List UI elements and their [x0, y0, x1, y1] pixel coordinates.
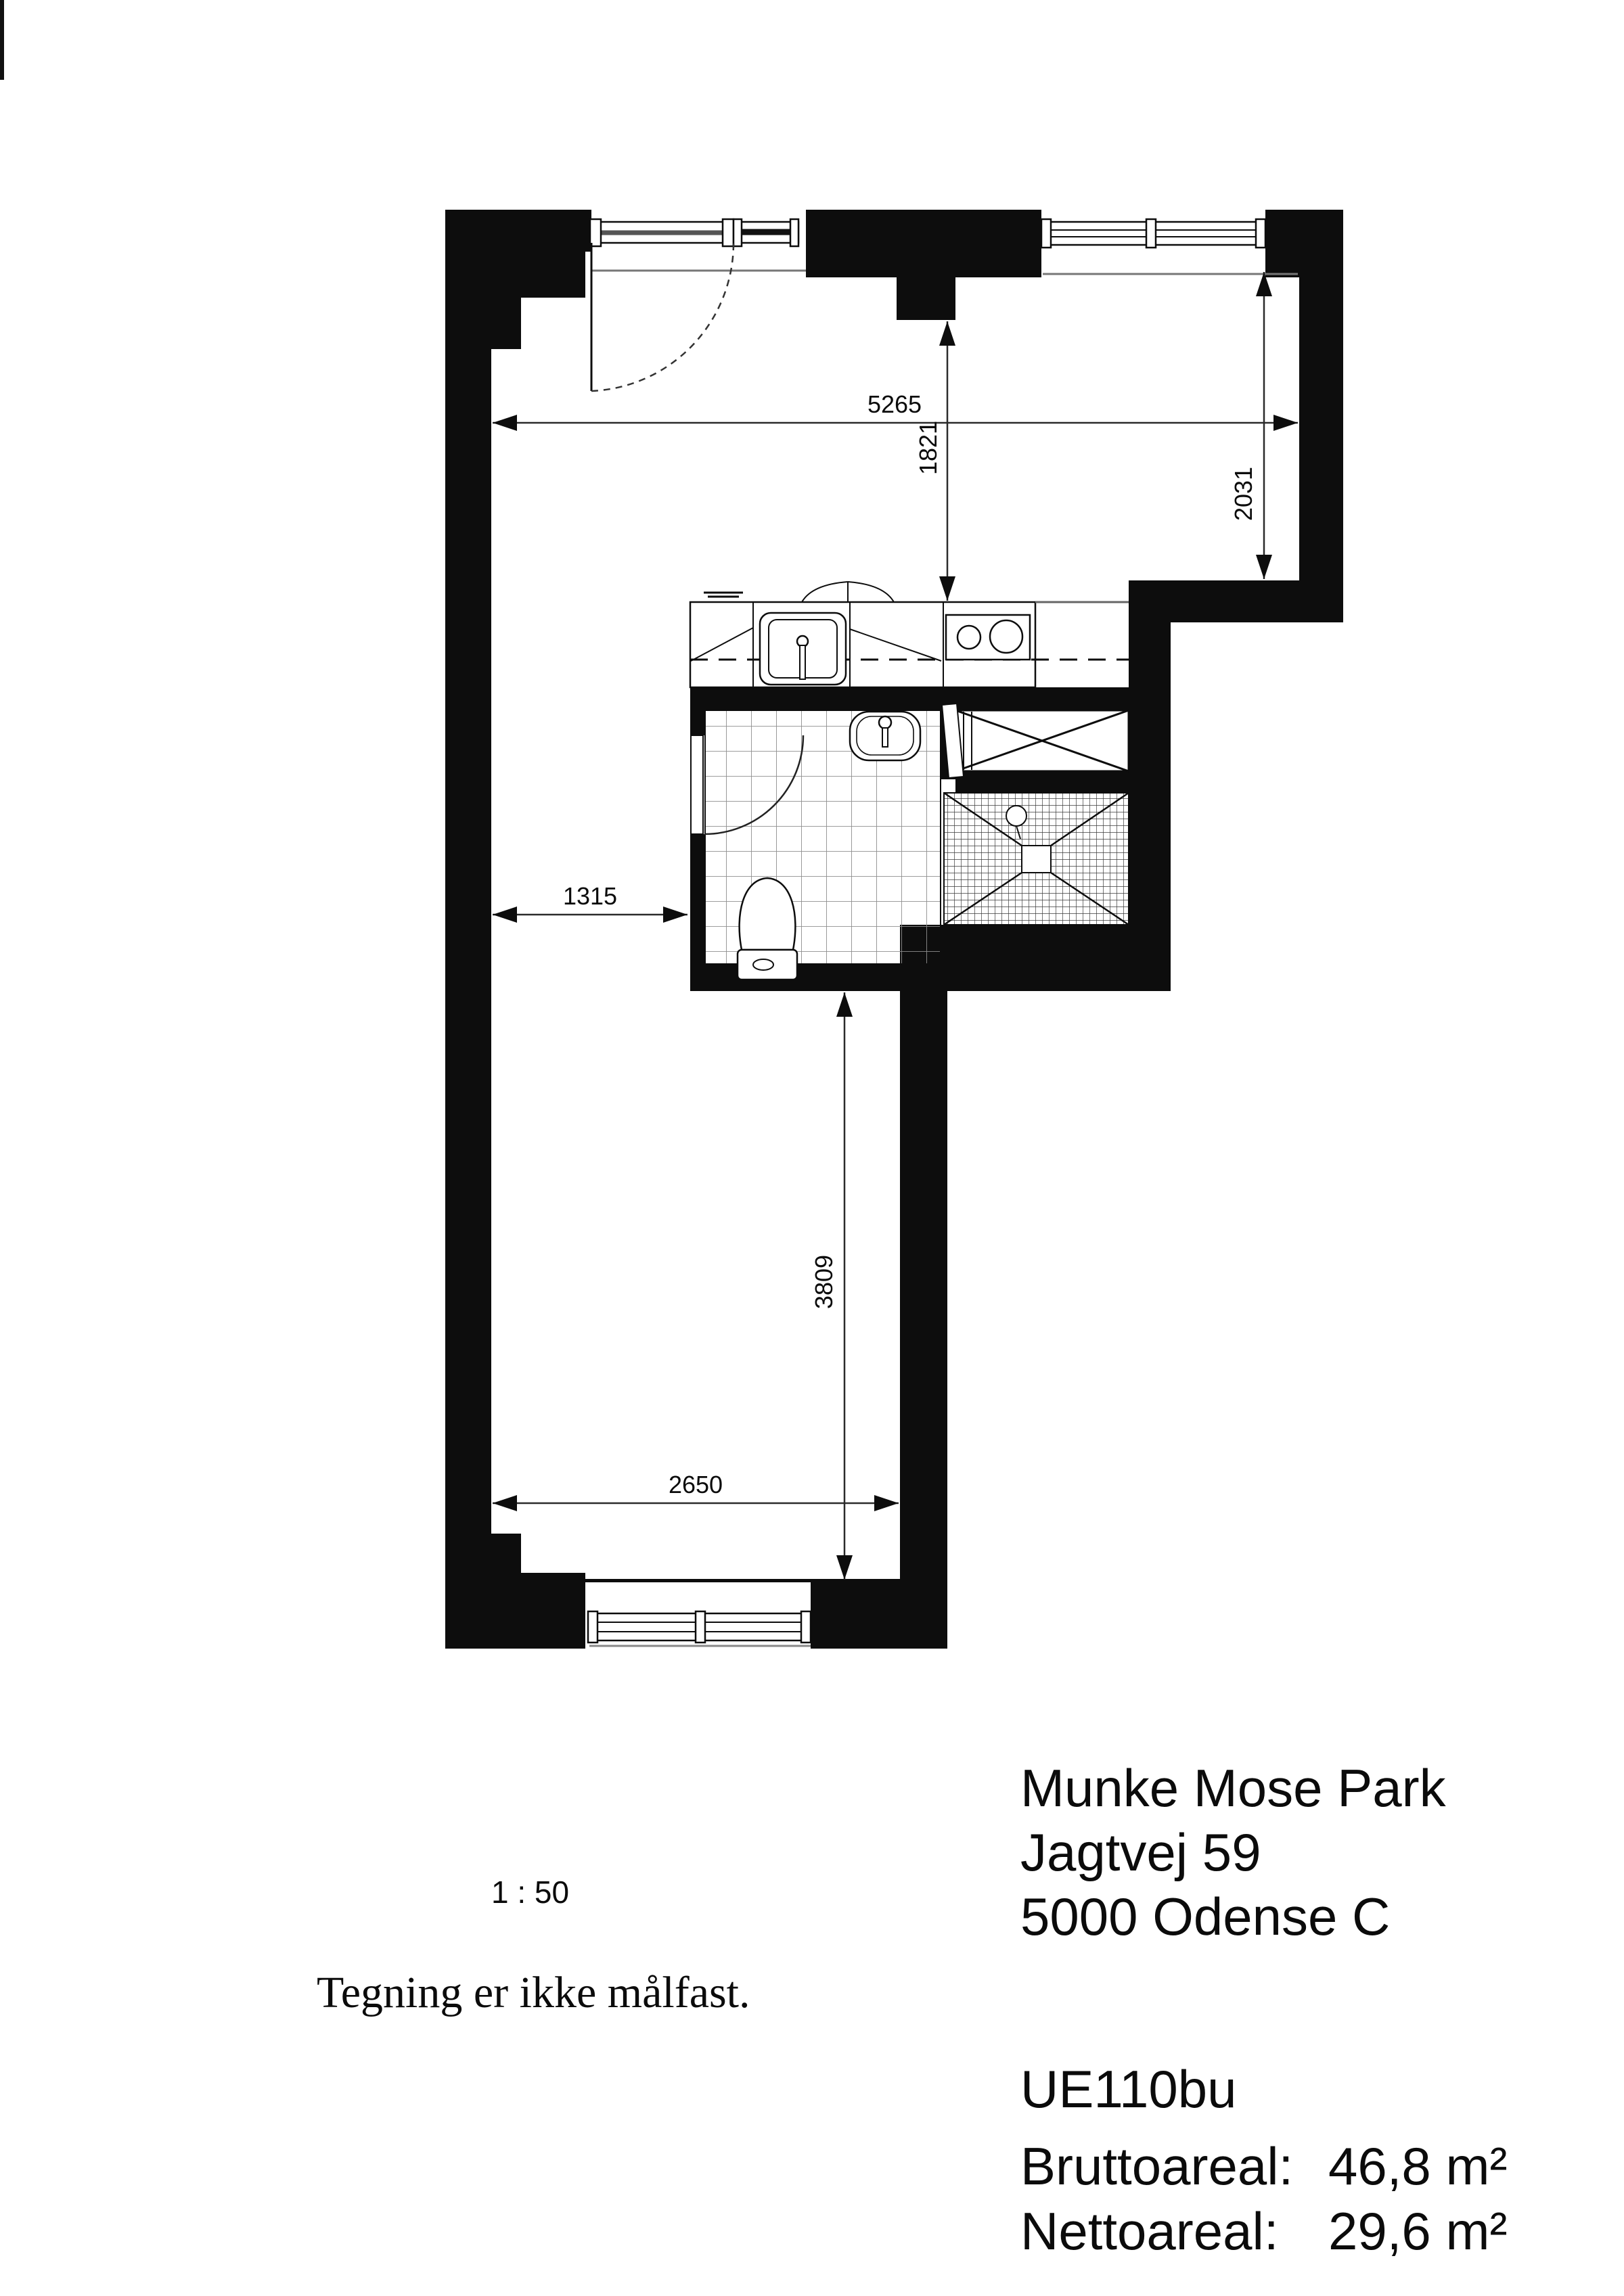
net-area-row: Nettoareal: 29,6 m² [1020, 2199, 1507, 2264]
drawing-page: 5265 1821 2031 1315 [0, 0, 1624, 2296]
wall-bottom-face-line [585, 1579, 811, 1582]
wall-kitchen-bath [690, 687, 1129, 710]
dim-1821: 1821 [914, 321, 955, 601]
kitchen [690, 582, 1129, 687]
wash-basin [850, 712, 920, 760]
wall-bottom-left-corner [445, 1573, 585, 1649]
shower-head-icon [1006, 806, 1027, 826]
dim-label-2650: 2650 [669, 1471, 723, 1498]
disclaimer-text: Tegning er ikke målfast. [317, 1967, 750, 2019]
wall-bottom-left-step [445, 1534, 521, 1573]
address-line-2: Jagtvej 59 [1020, 1820, 1446, 1885]
hood-arcs [704, 582, 894, 602]
dim-1315: 1315 [493, 882, 687, 923]
sidelight-window [734, 219, 798, 246]
address-block: Munke Mose Park Jagtvej 59 5000 Odense C [1020, 1756, 1446, 1949]
net-area-value: 29,6 m² [1328, 2199, 1507, 2264]
scale-label: 1 : 50 [491, 1874, 569, 1910]
wall-top-pier-step [897, 277, 955, 320]
address-line-3: 5000 Odense C [1020, 1885, 1446, 1949]
unit-info-block: UE110bu Bruttoareal: 46,8 m² Nettoareal:… [1020, 2057, 1507, 2264]
gross-area-row: Bruttoareal: 46,8 m² [1020, 2134, 1507, 2199]
wall-left [445, 210, 491, 1534]
bathroom [691, 710, 941, 980]
gross-area-value: 46,8 m² [1328, 2134, 1507, 2199]
shower-drain [1022, 846, 1051, 873]
floor-plan: 5265 1821 2031 1315 [0, 0, 1624, 2296]
entrance-door-frame [590, 219, 734, 246]
bathroom-door-leaf [691, 735, 703, 834]
unit-id: UE110bu [1020, 2057, 1507, 2121]
shaft [955, 710, 1129, 771]
net-area-label: Nettoareal: [1020, 2199, 1328, 2264]
dim-label-1315: 1315 [563, 882, 617, 910]
wall-shaft-bottom [955, 771, 1129, 793]
dim-2650: 2650 [493, 1471, 899, 1511]
wall-bottom-right-corner [811, 1579, 947, 1649]
wall-top-seg-left [445, 210, 591, 252]
dim-2031: 2031 [1230, 272, 1272, 579]
window-top-right [1041, 219, 1265, 248]
kitchen-sink [760, 613, 846, 685]
dim-label-3809: 3809 [810, 1255, 838, 1309]
gross-area-label: Bruttoareal: [1020, 2134, 1328, 2199]
dim-3809: 3809 [810, 992, 853, 1580]
dim-5265: 5265 [493, 390, 1298, 431]
address-line-1: Munke Mose Park [1020, 1756, 1446, 1820]
wall-right-upper [1299, 210, 1343, 622]
dim-label-5265: 5265 [867, 390, 922, 418]
entrance-door [591, 243, 734, 391]
wall-step [1129, 580, 1343, 622]
wall-top-pier [806, 210, 1041, 277]
window-bottom [588, 1611, 811, 1646]
wall-bath-left-a [690, 710, 705, 735]
dim-label-2031: 2031 [1230, 467, 1257, 521]
dim-label-1821: 1821 [914, 421, 942, 475]
stove [946, 615, 1030, 660]
wall-right-lower [900, 991, 947, 1649]
toilet [738, 878, 797, 980]
wall-bath-left-b [690, 834, 705, 964]
